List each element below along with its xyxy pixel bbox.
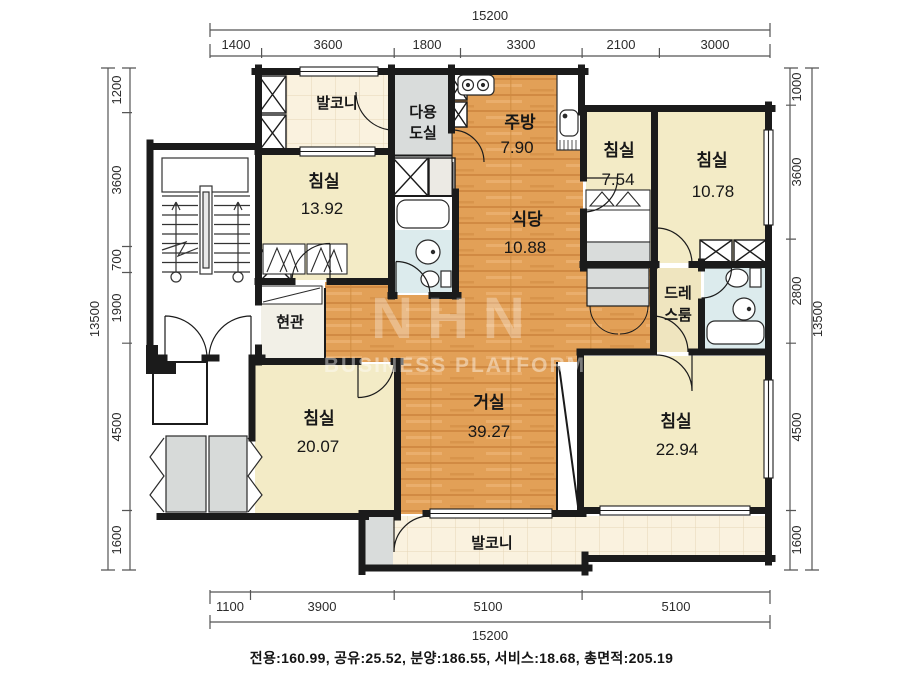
watermark-subtitle: BUSINESS PLATFORM (324, 354, 586, 377)
dim-top-total: 15200 (472, 8, 508, 23)
dim-bottom-total: 15200 (472, 628, 508, 643)
dim-left-total: 13500 (87, 301, 102, 337)
dim-left-seg1: 3600 (109, 166, 124, 195)
dim-bottom-seg0: 1100 (216, 599, 244, 614)
area-dining: 10.88 (504, 238, 547, 257)
floorplan-page: NHN BUSINESS PLATFORM 발코니 다용 도실 주방 7.90 … (0, 0, 923, 676)
dim-top-seg0: 1400 (222, 37, 251, 52)
dim-bottom-seg3: 5100 (662, 599, 691, 614)
dim-right-seg0: 1000 (789, 73, 804, 102)
entrance-step (261, 286, 322, 304)
label-bedroom5: 침실 (660, 411, 691, 431)
area-bedroom1: 13.92 (301, 199, 344, 218)
label-dining: 식당 (511, 210, 543, 229)
label-dressroom-2: 스룸 (664, 307, 692, 324)
dim-bottom-seg1: 3900 (308, 599, 337, 614)
dim-right-seg4: 1600 (789, 526, 804, 555)
label-balcony-bottom: 발코니 (471, 535, 512, 552)
dim-top-seg5: 3000 (701, 37, 730, 52)
label-utility-2: 도실 (409, 125, 437, 142)
dim-left-seg0: 1200 (109, 76, 124, 105)
area-bedroom5: 22.94 (656, 440, 699, 459)
dim-top-seg2: 1800 (413, 37, 442, 52)
dim-left-seg4: 4500 (109, 413, 124, 442)
label-entrance: 현관 (276, 314, 304, 331)
area-bedroom4: 20.07 (297, 437, 340, 456)
label-bedroom2: 침실 (603, 140, 634, 160)
dim-left-seg3: 1900 (109, 294, 124, 323)
dim-bottom-seg2: 5100 (474, 599, 503, 614)
dim-right-seg3: 4500 (789, 413, 804, 442)
bed-icon-bedroom2 (586, 190, 650, 263)
label-bedroom4: 침실 (303, 408, 334, 428)
dim-top-seg4: 2100 (607, 37, 636, 52)
area-bedroom3: 10.78 (692, 182, 735, 201)
dim-right-seg2: 2800 (789, 277, 804, 306)
label-kitchen: 주방 (504, 113, 536, 132)
wardrobe-icon-bedroom1 (263, 244, 347, 274)
dim-top-seg3: 3300 (507, 37, 536, 52)
area-living: 39.27 (468, 422, 511, 441)
stairs-icon (162, 158, 250, 282)
dim-left-seg5: 1600 (109, 526, 124, 555)
floor-plan-svg: NHN BUSINESS PLATFORM 발코니 다용 도실 주방 7.90 … (0, 0, 923, 676)
label-bedroom3: 침실 (696, 150, 727, 170)
dim-left-seg2: 700 (109, 249, 124, 271)
label-dressroom-1: 드레 (664, 285, 692, 302)
label-balcony-top: 발코니 (316, 95, 357, 112)
dim-right-seg1: 3600 (789, 158, 804, 187)
watermark-logo: NHN (371, 286, 539, 351)
label-living: 거실 (473, 393, 504, 412)
label-bedroom1: 침실 (308, 171, 339, 191)
dim-right-total: 13500 (810, 301, 825, 337)
area-summary-text: 전용:160.99, 공유:25.52, 분양:186.55, 서비스:18.6… (0, 648, 923, 668)
area-bedroom2: 7.54 (601, 170, 634, 189)
label-utility-1: 다용 (409, 104, 437, 121)
dim-top-seg1: 3600 (314, 37, 343, 52)
folding-closet-icons (150, 436, 262, 512)
area-kitchen: 7.90 (500, 138, 533, 157)
